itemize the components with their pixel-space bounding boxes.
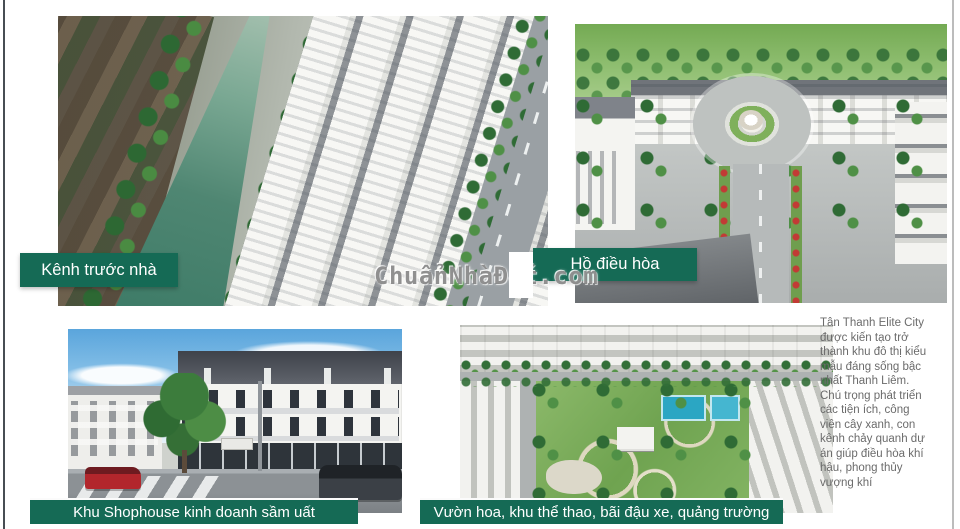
shophouse-tree-trunk [182, 450, 187, 472]
project-description: Tân Thanh Elite City được kiến tạo trở t… [820, 316, 932, 490]
watermark-gap-cover [509, 252, 533, 298]
watermark: ChuẩnNhàĐất.com [374, 261, 598, 291]
park-trees [531, 381, 762, 513]
caption-park: Vườn hoa, khu thể thao, bãi đậu xe, quản… [420, 498, 783, 524]
page-right-border [952, 0, 954, 529]
caption-canal: Kênh trước nhà [20, 253, 178, 287]
caption-shophouse: Khu Shophouse kinh doanh sầm uất [30, 498, 358, 524]
photo-park-view [460, 325, 833, 513]
page-left-border [3, 0, 5, 529]
shophouse-lamp-pole [258, 381, 261, 471]
shophouse-dark-suv [319, 465, 403, 500]
shophouse-street-tree [141, 373, 228, 461]
shophouse-red-car [85, 467, 142, 489]
brochure-page: Kênh trước nhà Hồ điều hòa Khu Shophouse… [0, 0, 960, 529]
park-roadside-trees [460, 376, 833, 387]
park-left-house-row [460, 381, 520, 513]
lake-fountain [739, 110, 763, 130]
lake-flower-median-right [791, 166, 802, 303]
photo-shophouse-view [68, 329, 402, 513]
